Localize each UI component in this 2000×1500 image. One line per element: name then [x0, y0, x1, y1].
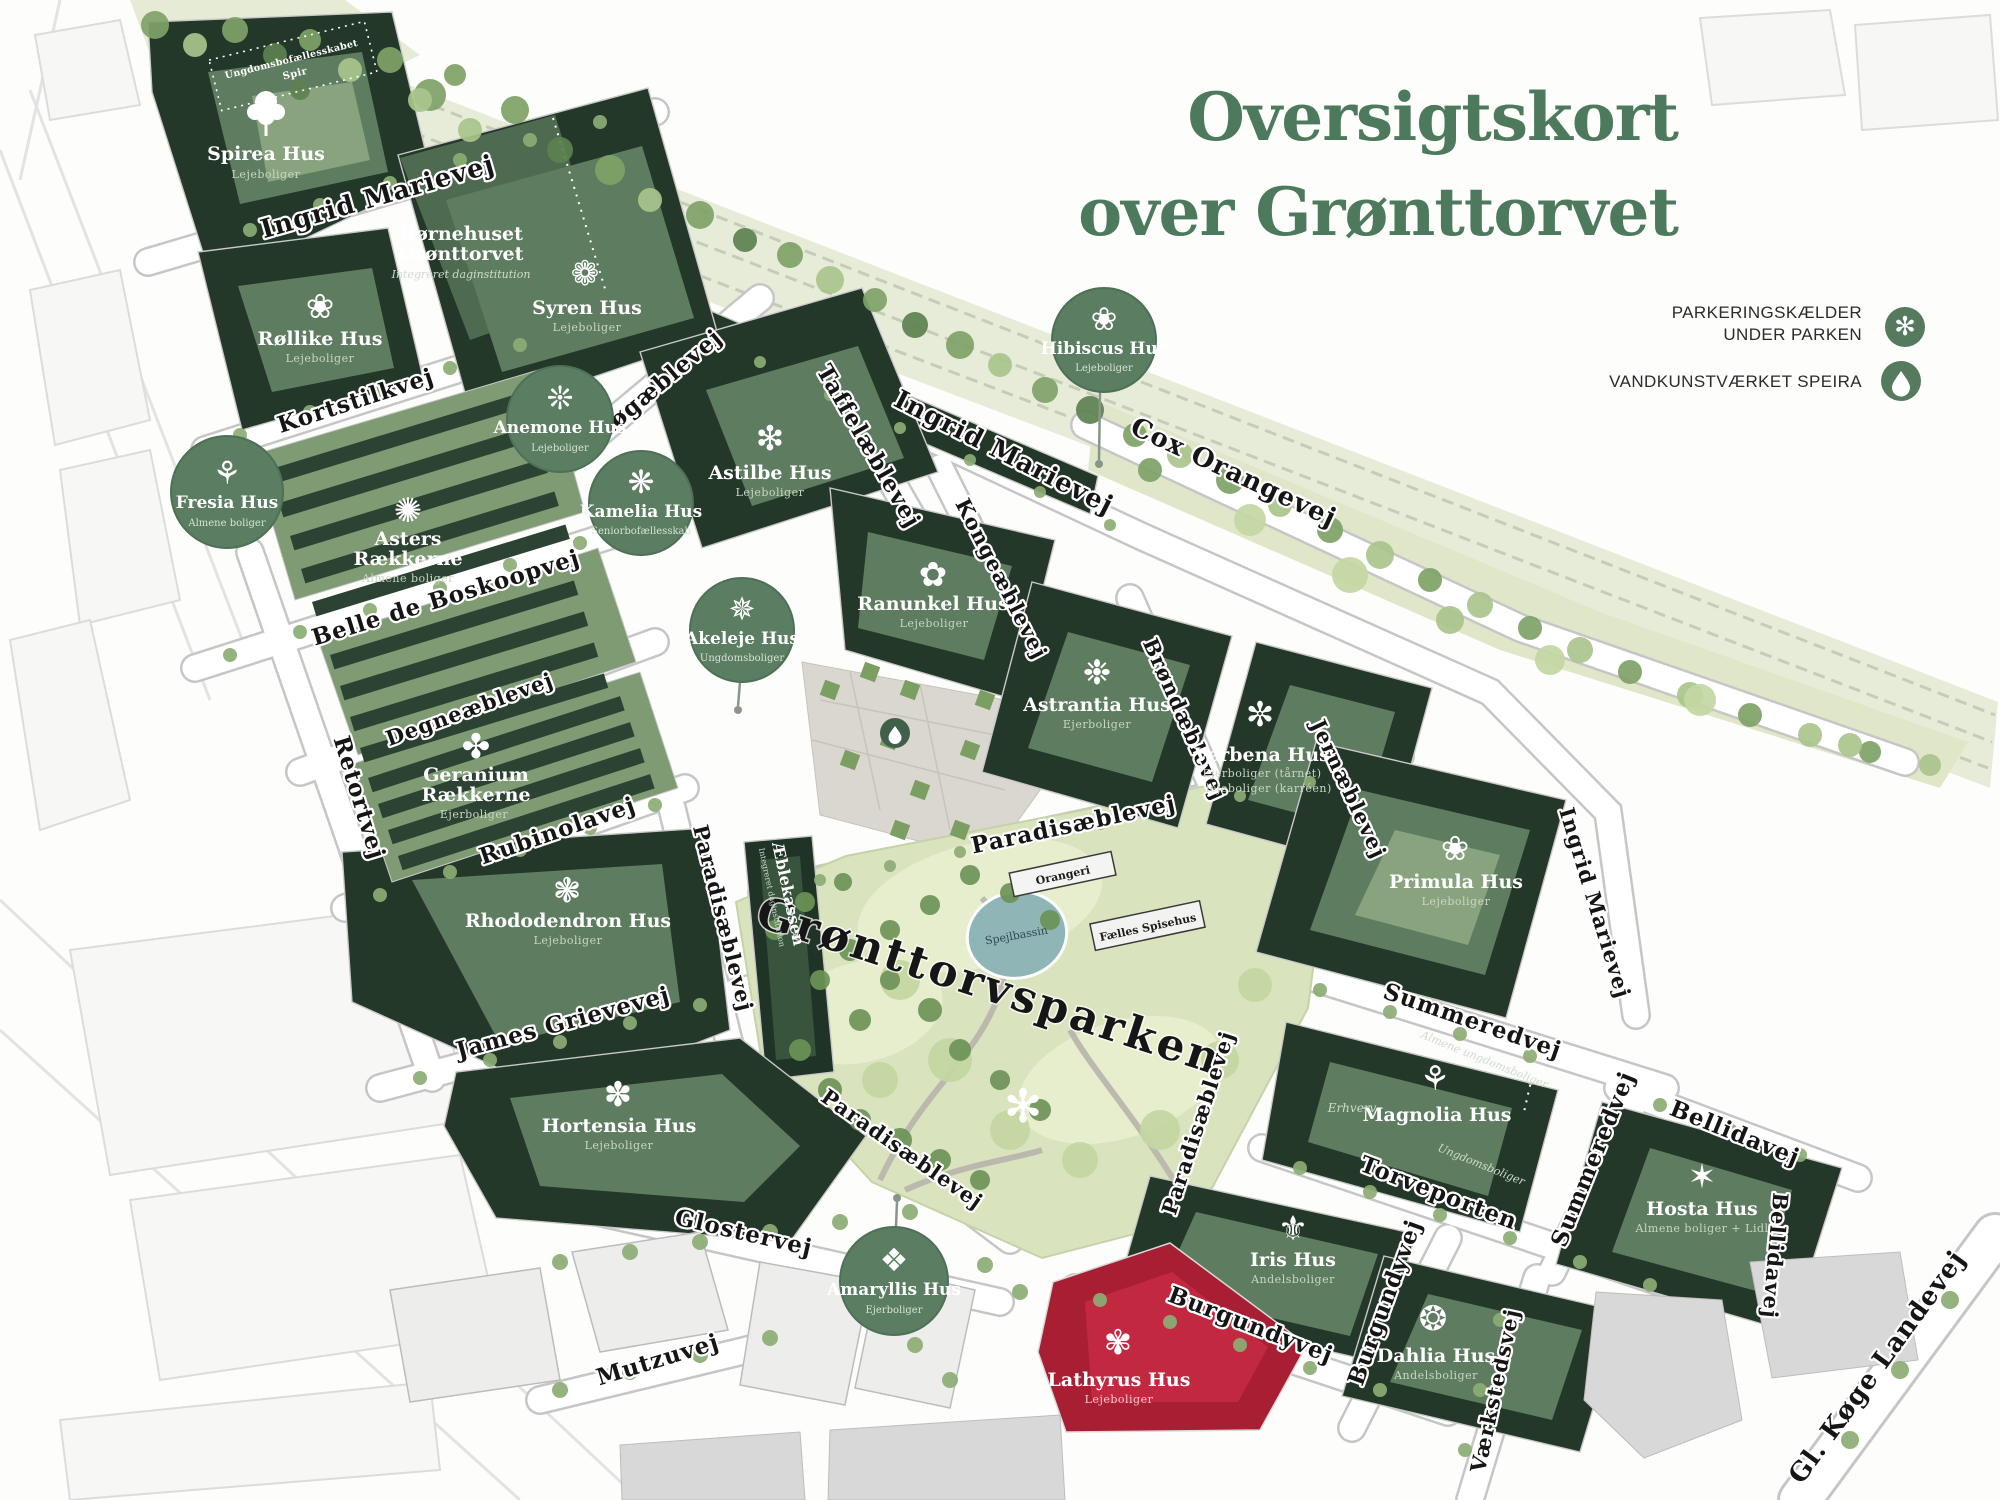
svg-text:Hosta Hus: Hosta Hus: [1646, 1198, 1758, 1220]
tree: [1332, 557, 1368, 593]
park-parking-asterisk-icon: ✻: [1004, 1079, 1043, 1133]
map-title-line2: over Grønttorvet: [1078, 173, 1679, 251]
tree: [1684, 684, 1716, 716]
svg-text:Lejeboliger: Lejeboliger: [736, 486, 805, 499]
tree: [884, 860, 896, 872]
tree: [1012, 1284, 1028, 1300]
tree: [458, 118, 482, 142]
map-canvas: Orangeri Fælles Spisehus Spejlbassin Grø…: [0, 0, 2000, 1500]
hibiscus-flower-icon: ❀: [1091, 300, 1118, 338]
svg-text:Geranium: Geranium: [423, 764, 529, 786]
svg-text:Akeleje Hus: Akeleje Hus: [684, 629, 799, 649]
tree: [1093, 1293, 1107, 1307]
tree: [862, 1062, 898, 1098]
hydrangea-flower-icon: ✽: [604, 1075, 633, 1115]
tree: [918, 998, 942, 1022]
svg-text:Primula Hus: Primula Hus: [1389, 871, 1523, 893]
tree: [1062, 1142, 1098, 1178]
tree: [814, 874, 826, 886]
astilbe-fern-icon: ❇: [756, 419, 785, 459]
svg-text:Lejeboliger: Lejeboliger: [553, 321, 622, 334]
tree: [1798, 723, 1822, 747]
geranium-flower-icon: ✤: [462, 727, 491, 767]
svg-text:Røllike Hus: Røllike Hus: [258, 328, 383, 350]
svg-text:Astilbe Hus: Astilbe Hus: [707, 462, 831, 484]
rhododendron-flower-icon: ❃: [553, 871, 582, 911]
tree: [523, 133, 537, 147]
tree: [810, 970, 830, 990]
tree: [1859, 741, 1881, 763]
tree: [894, 422, 906, 434]
tree: [942, 1372, 958, 1388]
tree: [733, 228, 757, 252]
ranunculus-flower-icon: ✿: [919, 555, 948, 595]
bornehuset-label-group: Børnehuset Grønttorvet Integreret dagins…: [391, 223, 531, 281]
tree: [902, 1204, 918, 1220]
tree: [1373, 1383, 1387, 1397]
tree: [593, 115, 607, 129]
freesia-flower-icon: ⚘: [213, 454, 242, 492]
amaryllis-flower-icon: ❖: [880, 1241, 909, 1279]
tree: [964, 454, 976, 466]
svg-text:Asters: Asters: [373, 528, 441, 550]
speira-fountain-icon: [880, 718, 910, 748]
svg-text:Ejerboliger: Ejerboliger: [865, 1305, 922, 1316]
svg-text:Integreret daginstitution: Integreret daginstitution: [391, 268, 531, 281]
aster-flower-icon: ✺: [394, 491, 423, 531]
tree: [1838, 733, 1862, 757]
tree: [1238, 968, 1272, 1002]
svg-text:Spirea Hus: Spirea Hus: [207, 143, 325, 165]
tree: [552, 1382, 568, 1398]
tree: [920, 895, 940, 915]
tree: [222, 17, 248, 43]
tree: [622, 1244, 638, 1260]
legend-water-line1: VANDKUNSTVÆRKET SPEIRA: [1609, 372, 1862, 391]
tree: [1163, 1315, 1177, 1329]
tree: [501, 96, 529, 124]
svg-text:Erhverv: Erhverv: [1327, 1101, 1377, 1115]
svg-text:Anemone Hus: Anemone Hus: [493, 418, 627, 438]
svg-text:Almene boliger: Almene boliger: [187, 518, 265, 529]
tree: [513, 338, 527, 352]
svg-text:✻: ✻: [1894, 312, 1916, 342]
svg-text:Ranunkel Hus: Ranunkel Hus: [857, 593, 1009, 615]
tree: [789, 1039, 811, 1061]
tree: [1138, 458, 1162, 482]
tree: [816, 266, 844, 294]
columbine-flower-icon: ✵: [729, 590, 756, 628]
svg-text:Lejeboliger: Lejeboliger: [232, 168, 301, 181]
tree: [1653, 1098, 1667, 1112]
tree: [1104, 519, 1116, 531]
hosta-flower-icon: ✶: [1688, 1157, 1717, 1197]
svg-text:Lejeboliger: Lejeboliger: [531, 443, 589, 454]
tree: [1573, 1255, 1587, 1269]
svg-text:Amaryllis Hus: Amaryllis Hus: [826, 1280, 961, 1300]
tree: [444, 64, 466, 86]
tree: [949, 1039, 971, 1061]
tree: [849, 1009, 871, 1031]
tree: [834, 873, 852, 891]
svg-text:Hortensia Hus: Hortensia Hus: [542, 1115, 697, 1137]
tree: [1436, 606, 1464, 634]
tree: [1738, 703, 1762, 727]
tree: [1518, 616, 1542, 640]
verbena-flower-icon: ✼: [1246, 695, 1275, 735]
svg-text:Ungdomsboliger: Ungdomsboliger: [700, 653, 784, 664]
svg-text:Rhododendron Hus: Rhododendron Hus: [465, 910, 671, 932]
tree: [907, 1337, 923, 1353]
svg-text:Dahlia Hus: Dahlia Hus: [1377, 1345, 1495, 1367]
svg-text:Lejeboliger: Lejeboliger: [1422, 895, 1491, 908]
svg-text:Lejeboliger: Lejeboliger: [585, 1139, 654, 1152]
tree: [977, 1257, 993, 1273]
badge-fresia-hus: ⚘ Fresia Hus Almene boliger: [171, 436, 283, 548]
tree: [902, 312, 928, 338]
svg-text:Iris Hus: Iris Hus: [1250, 1249, 1336, 1271]
tree: [373, 888, 387, 902]
legend-parking-line1: PARKERINGSKÆLDER: [1672, 303, 1862, 322]
tree: [693, 998, 707, 1012]
tree: [243, 223, 257, 237]
astrantia-flower-icon: ❉: [1083, 653, 1112, 693]
camellia-flower-icon: ❋: [628, 463, 655, 501]
svg-text:Almene boliger + Lidl: Almene boliger + Lidl: [1634, 1222, 1768, 1235]
tree: [686, 201, 714, 229]
svg-text:Ejerboliger (tårnet): Ejerboliger (tårnet): [1202, 767, 1321, 780]
tree: [293, 625, 307, 639]
tree: [377, 47, 403, 73]
svg-text:Lejeboliger: Lejeboliger: [1085, 1393, 1154, 1406]
tree: [1140, 1110, 1180, 1150]
svg-text:Lejeboliger: Lejeboliger: [900, 617, 969, 630]
tree: [290, 80, 310, 100]
svg-text:Astrantia Hus: Astrantia Hus: [1022, 694, 1171, 716]
svg-text:Andelsboliger: Andelsboliger: [1250, 1273, 1335, 1286]
tree: [1032, 377, 1058, 403]
svg-text:Ejerboliger: Ejerboliger: [440, 808, 508, 821]
parking-asterisk-icon: ✻: [1885, 307, 1925, 347]
svg-text:Syren Hus: Syren Hus: [532, 297, 642, 319]
primrose-flower-icon: ❀: [1441, 829, 1470, 869]
tree: [1233, 1338, 1247, 1352]
yarrow-flower-icon: ❀: [306, 287, 335, 327]
tree: [1234, 504, 1266, 536]
map-title-line1: Oversigtskort: [1187, 78, 1679, 156]
tree: [1363, 1185, 1377, 1199]
svg-text:Lejeboliger: Lejeboliger: [1075, 363, 1133, 374]
tree: [1293, 1161, 1307, 1175]
tree: [443, 865, 457, 879]
tree: [1567, 637, 1593, 663]
svg-text:Lejeboliger: Lejeboliger: [534, 934, 603, 947]
tree: [960, 865, 980, 885]
sweetpea-flower-icon: ✾: [1104, 1323, 1133, 1363]
tree: [1366, 541, 1394, 569]
site-plan-map: Orangeri Fælles Spisehus Spejlbassin Grø…: [0, 0, 2000, 1500]
lilac-flower-icon: ❁: [571, 254, 600, 294]
tree: [832, 1214, 848, 1230]
svg-text:+ lejeboliger (karréen): + lejeboliger (karréen): [1192, 782, 1332, 795]
tree: [988, 353, 1012, 377]
tree: [1433, 1208, 1447, 1222]
svg-text:Kamelia Hus: Kamelia Hus: [580, 502, 702, 522]
tree: [754, 356, 766, 368]
legend-parking-line2: UNDER PARKEN: [1723, 325, 1862, 344]
tree: [552, 1254, 568, 1270]
anemone-flower-icon: ❊: [547, 379, 574, 417]
svg-text:Lathyrus Hus: Lathyrus Hus: [1048, 1369, 1191, 1391]
tree: [1467, 592, 1493, 618]
svg-text:Fresia Hus: Fresia Hus: [176, 493, 279, 513]
tree: [1535, 645, 1565, 675]
tree: [595, 155, 625, 185]
magnolia-flower-icon: ⚘: [1420, 1059, 1450, 1099]
dahlia-flower-icon: ❂: [1419, 1299, 1448, 1339]
tree: [648, 798, 662, 812]
tree: [183, 33, 207, 57]
svg-text:Rækkerne: Rækkerne: [353, 548, 462, 570]
iris-flower-icon: ⚜: [1278, 1209, 1308, 1249]
tree: [1919, 754, 1941, 776]
svg-text:Rækkerne: Rækkerne: [421, 784, 530, 806]
tree: [1418, 568, 1442, 592]
tree: [777, 242, 803, 268]
svg-text:Børnehuset: Børnehuset: [399, 223, 523, 245]
tree: [762, 1330, 778, 1346]
tree: [946, 331, 974, 359]
svg-text:Almene boliger: Almene boliger: [361, 572, 454, 585]
tree: [547, 137, 573, 163]
tree: [443, 361, 457, 375]
tree: [408, 88, 432, 112]
svg-text:Seniorbofællesskab: Seniorbofællesskab: [591, 526, 691, 537]
tree: [1643, 1278, 1657, 1292]
svg-text:Verbena Hus: Verbena Hus: [1193, 744, 1330, 766]
svg-text:Grønttorvet: Grønttorvet: [399, 243, 524, 265]
tree: [141, 11, 169, 39]
tree: [413, 1071, 427, 1085]
tree: [1313, 983, 1327, 997]
svg-text:Hibiscus Hus: Hibiscus Hus: [1041, 339, 1168, 359]
svg-text:Ejerboliger: Ejerboliger: [1063, 718, 1131, 731]
svg-text:Lejeboliger: Lejeboliger: [286, 352, 355, 365]
tree: [863, 288, 887, 312]
tree: [638, 188, 662, 212]
svg-text:Andelsboliger: Andelsboliger: [1393, 1369, 1478, 1382]
tree: [954, 846, 966, 858]
tree: [1618, 660, 1642, 684]
water-droplet-icon: [1881, 361, 1921, 401]
tree: [223, 648, 237, 662]
svg-text:Magnolia Hus: Magnolia Hus: [1363, 1104, 1512, 1126]
